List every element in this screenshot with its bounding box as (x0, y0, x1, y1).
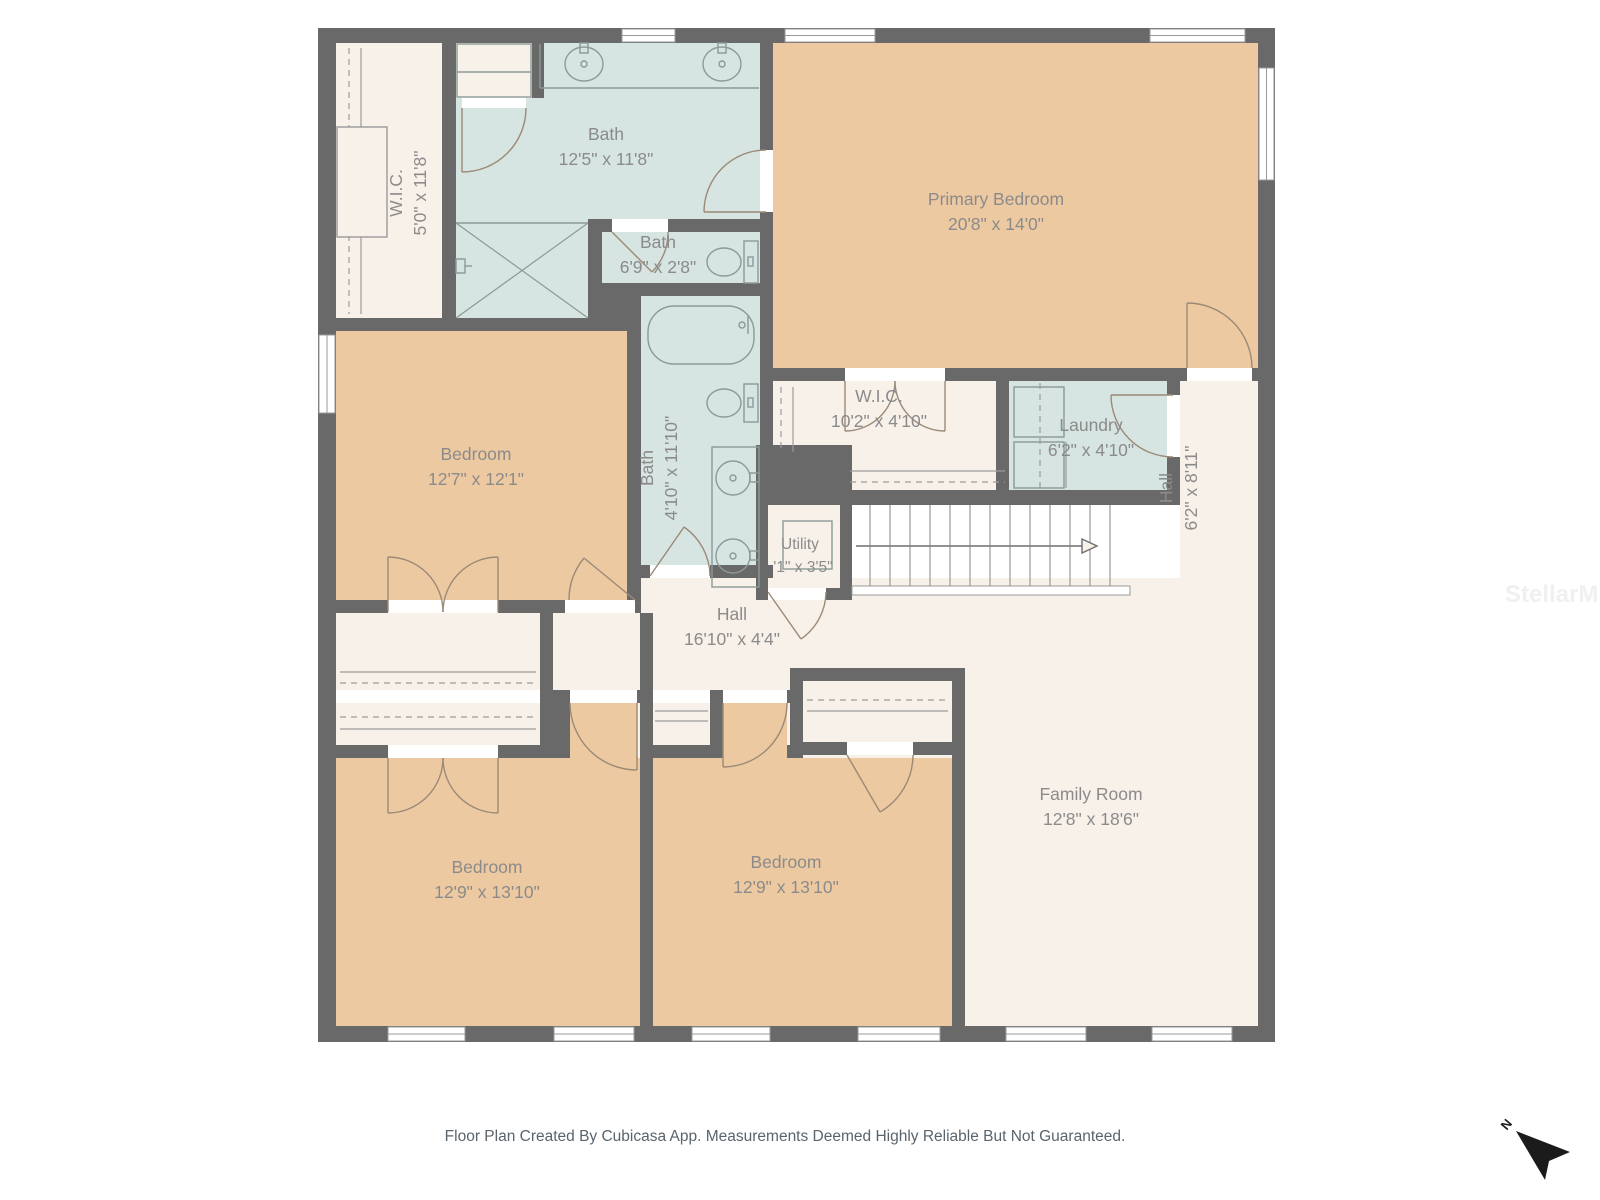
bedroom-bm-door-recess (723, 703, 787, 763)
label-hall-center-dims: 16'10" x 4'4" (684, 629, 780, 649)
label-primary-name: Primary Bedroom (928, 189, 1064, 209)
compass-n-label: N (1498, 1116, 1516, 1133)
label-bedroom-bm-dims: 12'9" x 13'10" (733, 877, 839, 897)
label-hall-center-name: Hall (717, 604, 747, 624)
label-utility-name: Utility (781, 536, 819, 553)
closet-upper (336, 613, 540, 690)
room-bath-mid (641, 296, 760, 565)
wardrobe-icon (337, 127, 387, 237)
window-icon (1150, 29, 1245, 42)
label-bedroom-mid-dims: 12'7" x 12'1" (428, 469, 524, 489)
label-family-name: Family Room (1039, 784, 1142, 804)
compass-north-icon: N (1498, 1116, 1570, 1180)
label-wic-mid-dims: 10'2" x 4'10" (831, 411, 927, 431)
window-icon (388, 1027, 465, 1041)
footer-disclaimer: Floor Plan Created By Cubicasa App. Meas… (445, 1128, 1126, 1145)
label-bedroom-mid-name: Bedroom (440, 444, 511, 464)
label-bedroom-bl-dims: 12'9" x 13'10" (434, 882, 540, 902)
label-wic-top-dims: 5'0" x 11'8" (410, 151, 430, 236)
bedroom-bl-door-recess (565, 703, 637, 763)
label-hall-right-dims: 6'2" x 8'11" (1181, 446, 1201, 531)
window-icon (692, 1027, 770, 1041)
label-bath-small-dims: 6'9" x 2'8" (620, 257, 697, 277)
label-bedroom-bm-name: Bedroom (750, 852, 821, 872)
label-bath-mid-dims: 4'10" x 11'10" (661, 416, 681, 520)
label-laundry-name: Laundry (1059, 415, 1122, 435)
label-wic-top-name: W.I.C. (386, 169, 406, 217)
window-icon (1152, 1027, 1232, 1041)
floor-plan-image: W.I.C. 5'0" x 11'8" Bath 12'5" x 11'8" B… (0, 0, 1600, 1200)
floor-plan-page: W.I.C. 5'0" x 11'8" Bath 12'5" x 11'8" B… (0, 0, 1600, 1200)
cabinet-icon (457, 44, 531, 97)
window-icon (1006, 1027, 1086, 1041)
watermark-stellarmls: StellarMLS (1505, 581, 1600, 608)
closet-lower (336, 703, 540, 745)
label-hall-right-name: Hall (1156, 473, 1176, 503)
label-wic-mid-name: W.I.C. (855, 386, 903, 406)
window-icon (554, 1027, 634, 1041)
label-bedroom-bl-name: Bedroom (451, 857, 522, 877)
window-icon (622, 29, 675, 42)
window-icon (319, 335, 335, 413)
window-icon (1259, 68, 1274, 180)
label-primary-dims: 20'8" x 14'0" (948, 214, 1044, 234)
label-bath-mid-name: Bath (637, 450, 657, 486)
label-laundry-dims: 6'2" x 4'10" (1048, 440, 1134, 460)
label-bath-top-name: Bath (588, 124, 624, 144)
label-utility-dims: '1" x 3'5" (773, 559, 832, 576)
stairs-direction-arrow (856, 539, 1097, 553)
window-icon (785, 29, 875, 42)
label-bath-small-name: Bath (640, 232, 676, 252)
label-family-dims: 12'8" x 18'6" (1043, 809, 1139, 829)
label-bath-top-dims: 12'5" x 11'8" (559, 149, 654, 169)
window-icon (858, 1027, 940, 1041)
room-laundry (1009, 381, 1167, 490)
